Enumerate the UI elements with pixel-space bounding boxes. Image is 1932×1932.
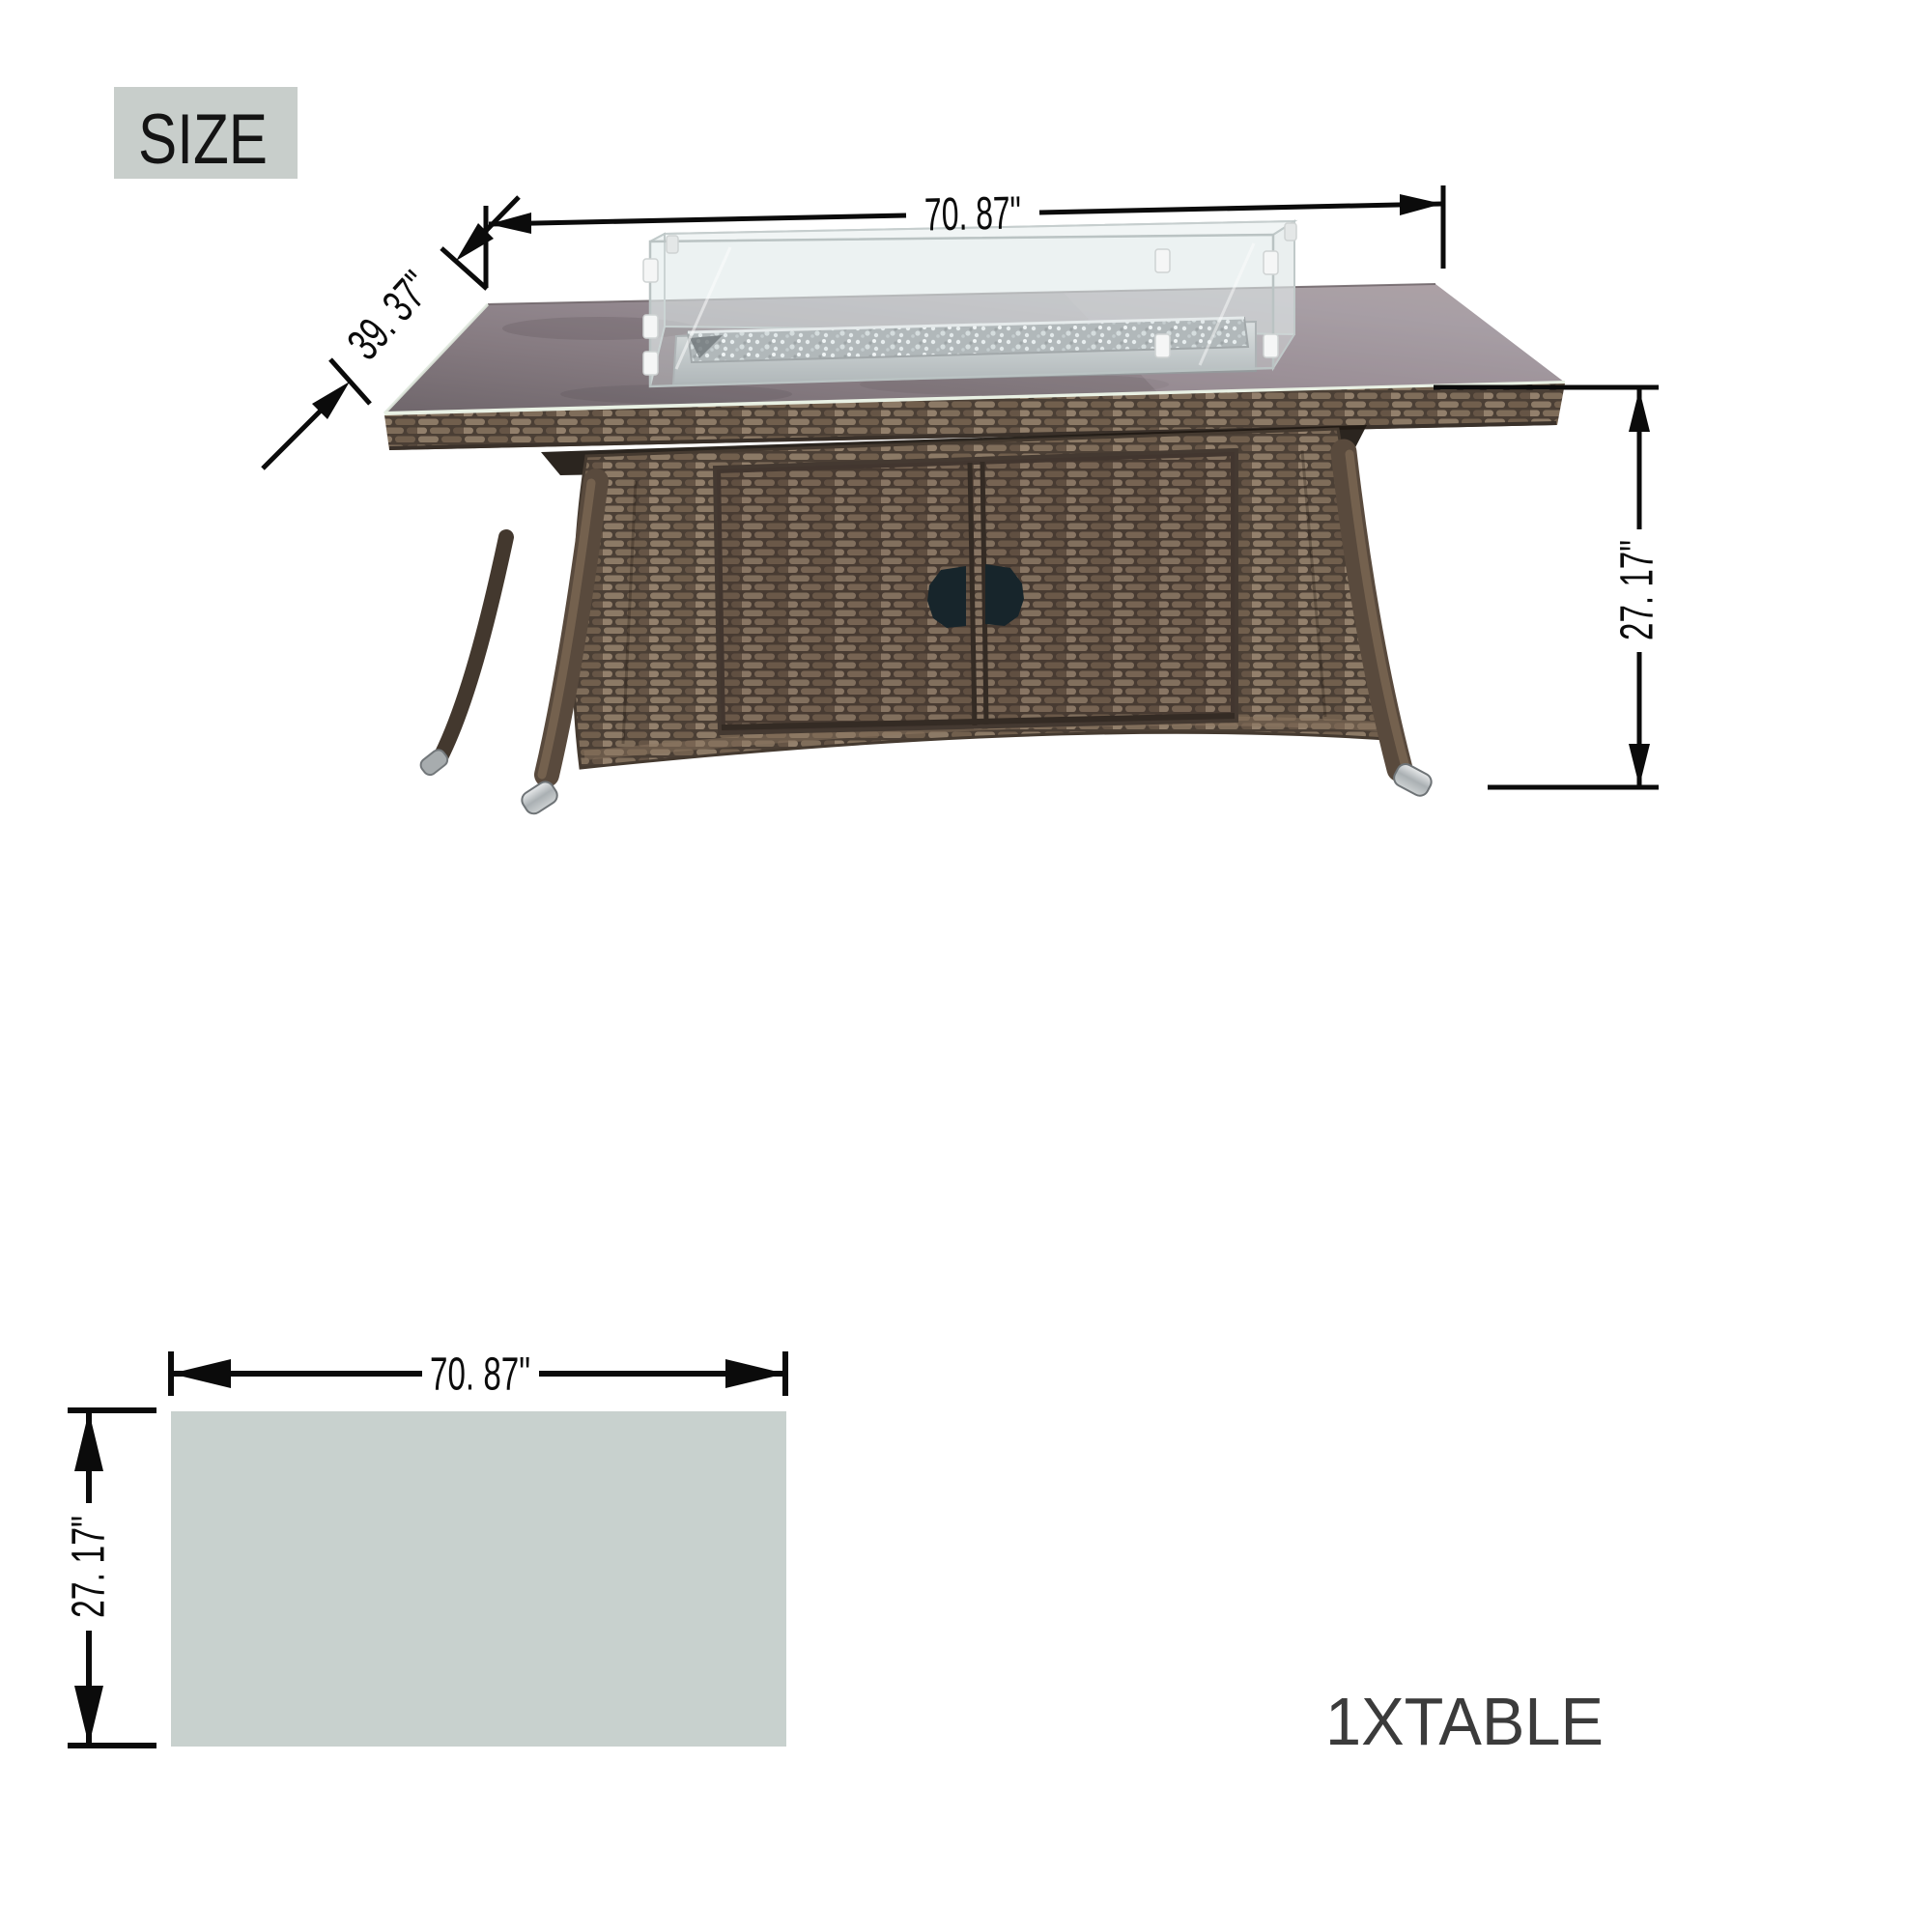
arrowhead (725, 1359, 785, 1388)
glass-clip (643, 315, 658, 338)
table-height-value: 27. 17" (1612, 540, 1663, 640)
glass-clip (667, 236, 678, 253)
size-badge-label: SIZE (138, 100, 268, 179)
wind-guard (643, 221, 1296, 386)
table-back-left-leg (418, 537, 506, 778)
size-badge: SIZE (114, 87, 298, 179)
arrowhead (1629, 744, 1650, 786)
footprint-schematic: 70. 87" 27. 17" (64, 1350, 787, 1747)
footprint-width-dimension: 70. 87" (171, 1350, 785, 1401)
footprint-height-value: 27. 17" (64, 1516, 115, 1618)
glass-clip (1264, 334, 1278, 357)
quantity-caption: 1XTABLE (1325, 1684, 1604, 1759)
table-front-right-leg (1344, 452, 1435, 799)
arrowhead (1629, 389, 1650, 432)
dimension-line (1039, 204, 1442, 213)
arrowhead (74, 1686, 103, 1746)
glass-clip (1285, 223, 1296, 241)
dimension-line (489, 215, 906, 224)
arrowhead (74, 1411, 103, 1471)
glass-smudge (560, 384, 792, 404)
fire-pit-table-illustration (384, 221, 1565, 817)
footprint-height-dimension: 27. 17" (64, 1410, 157, 1746)
glass-clip (1155, 334, 1170, 357)
footprint-width-value: 70. 87" (430, 1350, 530, 1401)
footprint-rectangle (171, 1411, 786, 1747)
storage-doors (717, 452, 1235, 731)
glass-clip (643, 352, 658, 375)
wind-guard-front-panel (650, 235, 1273, 386)
glass-clip (1155, 249, 1170, 272)
table-depth-value: 39. 37" (338, 262, 442, 369)
table-height-dimension: 27. 17" (1434, 387, 1663, 787)
glass-clip (643, 259, 658, 282)
arrowhead (1400, 194, 1442, 215)
dimension-line (263, 410, 322, 469)
arrowhead (171, 1359, 231, 1388)
diagram-canvas: SIZE (0, 0, 1932, 1932)
product-size-diagram-page: SIZE (0, 0, 1932, 1932)
table-width-value: 70. 87" (923, 187, 1021, 241)
pedestal-base (574, 429, 1401, 768)
glass-clip (1264, 251, 1278, 274)
